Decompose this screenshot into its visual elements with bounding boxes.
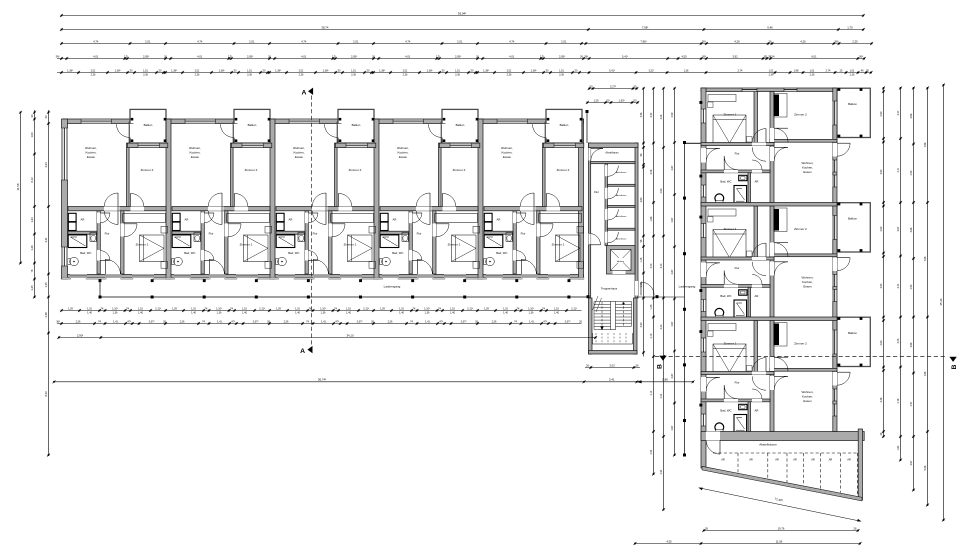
svg-text:1,51: 1,51 <box>247 69 252 72</box>
svg-text:1,38²: 1,38² <box>531 69 537 72</box>
svg-text:6,01: 6,01 <box>811 54 817 58</box>
svg-text:AR: AR <box>847 458 851 462</box>
svg-text:1,10²: 1,10² <box>112 307 118 310</box>
svg-text:B: B <box>656 364 663 369</box>
svg-text:1,01: 1,01 <box>850 69 855 72</box>
svg-text:4,74: 4,74 <box>405 39 411 43</box>
svg-text:35,36: 35,36 <box>939 298 943 305</box>
svg-text:AR: AR <box>811 458 815 462</box>
svg-text:2,65²: 2,65² <box>455 54 461 58</box>
svg-text:3,43: 3,43 <box>660 263 663 268</box>
svg-text:26: 26 <box>705 526 708 530</box>
svg-text:AR: AR <box>775 458 779 462</box>
svg-text:2,99: 2,99 <box>671 112 674 117</box>
svg-text:4,01: 4,01 <box>405 54 411 58</box>
svg-text:26: 26 <box>769 39 772 43</box>
svg-text:7,88: 7,88 <box>924 371 927 376</box>
svg-text:2,90²: 2,90² <box>77 333 83 337</box>
svg-text:4,03: 4,03 <box>910 170 913 175</box>
svg-text:17³: 17³ <box>332 54 336 58</box>
svg-text:AR: AR <box>497 218 501 222</box>
svg-text:1,05: 1,05 <box>650 304 653 309</box>
svg-text:Abstellraum: Abstellraum <box>605 151 618 154</box>
svg-text:3,06: 3,06 <box>640 112 643 117</box>
svg-text:2,87: 2,87 <box>671 425 674 430</box>
svg-text:B: B <box>951 364 958 369</box>
svg-text:1,40: 1,40 <box>346 312 351 315</box>
svg-text:1,36: 1,36 <box>529 312 534 315</box>
svg-text:Abstellräume: Abstellräume <box>759 442 777 446</box>
svg-text:AR: AR <box>829 458 833 462</box>
svg-text:Zimmer 1: Zimmer 1 <box>724 227 737 231</box>
svg-text:Zimmer 1: Zimmer 1 <box>724 342 737 346</box>
svg-text:2,03: 2,03 <box>609 363 615 367</box>
svg-text:1,01: 1,01 <box>399 307 404 310</box>
svg-text:3,28: 3,28 <box>650 169 653 174</box>
svg-text:Kochen,: Kochen, <box>397 150 408 154</box>
svg-text:3,07²: 3,07² <box>149 320 155 323</box>
svg-text:Flur: Flur <box>521 232 526 236</box>
svg-text:1,63: 1,63 <box>30 132 34 138</box>
svg-text:2,51: 2,51 <box>145 39 151 43</box>
svg-text:3,86: 3,86 <box>910 342 913 347</box>
svg-text:1,86: 1,86 <box>650 216 653 221</box>
svg-text:Wohnen,: Wohnen, <box>85 146 97 150</box>
svg-text:1,41: 1,41 <box>425 320 430 323</box>
svg-text:AR: AR <box>749 458 753 462</box>
svg-text:1,40: 1,40 <box>554 312 559 315</box>
svg-text:Flur: Flur <box>209 232 214 236</box>
svg-text:6,13: 6,13 <box>30 177 34 183</box>
svg-text:2,36: 2,36 <box>195 74 200 77</box>
svg-text:2,65²: 2,65² <box>351 54 357 58</box>
svg-text:4,26: 4,26 <box>800 39 806 43</box>
svg-text:3,26: 3,26 <box>660 114 663 119</box>
svg-text:2,51: 2,51 <box>457 39 463 43</box>
svg-text:Laubengang: Laubengang <box>384 284 401 288</box>
svg-text:1,51: 1,51 <box>450 307 455 310</box>
svg-text:47²: 47² <box>335 320 339 323</box>
svg-text:1,01: 1,01 <box>87 307 92 310</box>
svg-text:1,26: 1,26 <box>593 98 599 102</box>
svg-text:2,01: 2,01 <box>195 69 200 72</box>
svg-text:1,36: 1,36 <box>113 312 118 315</box>
svg-text:1,51: 1,51 <box>455 69 460 72</box>
svg-text:17³: 17³ <box>228 54 232 58</box>
svg-text:Flur: Flur <box>313 232 318 236</box>
svg-text:36²: 36² <box>859 54 863 58</box>
svg-text:2,11²: 2,11² <box>571 307 577 310</box>
svg-text:Abstellraum: Abstellraum <box>616 194 627 197</box>
svg-text:3,23: 3,23 <box>660 324 663 329</box>
svg-text:3,53: 3,53 <box>880 169 883 174</box>
svg-text:Zimmer 1: Zimmer 1 <box>552 242 565 246</box>
svg-text:4,44: 4,44 <box>44 162 48 168</box>
svg-text:3,00: 3,00 <box>640 322 643 327</box>
svg-text:Essen: Essen <box>399 155 408 159</box>
svg-text:2,51: 2,51 <box>249 39 255 43</box>
svg-text:2,60: 2,60 <box>880 340 883 345</box>
svg-text:1,26: 1,26 <box>68 307 73 310</box>
svg-text:1,26: 1,26 <box>172 307 177 310</box>
svg-text:2,36: 2,36 <box>850 74 855 77</box>
svg-text:Bad, WC: Bad, WC <box>392 251 403 255</box>
svg-text:1,40: 1,40 <box>242 312 247 315</box>
svg-text:1,62: 1,62 <box>897 445 900 450</box>
svg-text:26: 26 <box>854 526 857 530</box>
svg-text:1,38²: 1,38² <box>67 69 73 72</box>
svg-text:7,96²: 7,96² <box>640 39 646 43</box>
svg-text:2,36: 2,36 <box>455 74 460 77</box>
svg-text:1,51: 1,51 <box>242 307 247 310</box>
svg-text:Zimmer 2: Zimmer 2 <box>245 168 258 172</box>
svg-text:2,48: 2,48 <box>44 312 48 318</box>
svg-text:1,40: 1,40 <box>138 312 143 315</box>
svg-text:Aufzug: Aufzug <box>617 260 625 263</box>
svg-text:3,41: 3,41 <box>609 378 615 382</box>
svg-text:17³: 17³ <box>540 54 544 58</box>
svg-text:1,10²: 1,10² <box>424 307 430 310</box>
svg-text:1,38²: 1,38² <box>323 69 329 72</box>
svg-text:1,01: 1,01 <box>810 69 815 72</box>
svg-text:1,40: 1,40 <box>450 312 455 315</box>
svg-text:1,01: 1,01 <box>295 307 300 310</box>
svg-text:4,01: 4,01 <box>509 54 515 58</box>
svg-text:Zimmer 2: Zimmer 2 <box>557 168 570 172</box>
svg-text:1,36: 1,36 <box>321 312 326 315</box>
svg-text:Essen: Essen <box>803 399 812 403</box>
svg-text:1,36: 1,36 <box>425 312 430 315</box>
svg-text:2,36: 2,36 <box>299 74 304 77</box>
svg-text:AR: AR <box>185 218 189 222</box>
svg-text:1,38²: 1,38² <box>115 69 121 72</box>
svg-text:1,43: 1,43 <box>30 217 34 223</box>
svg-text:3,67: 3,67 <box>910 460 913 465</box>
svg-text:4,03: 4,03 <box>910 284 913 289</box>
svg-text:1,38²: 1,38² <box>427 69 433 72</box>
svg-text:2,60: 2,60 <box>880 226 883 231</box>
svg-text:Flur: Flur <box>735 152 740 156</box>
svg-text:5,06: 5,06 <box>924 465 927 470</box>
svg-text:2,26: 2,26 <box>492 320 497 323</box>
svg-text:2,26: 2,26 <box>76 320 81 323</box>
svg-text:2,51: 2,51 <box>353 39 359 43</box>
svg-text:36²: 36² <box>834 39 838 43</box>
svg-text:7,88: 7,88 <box>924 142 927 147</box>
svg-text:AR: AR <box>755 409 759 413</box>
svg-text:1,10²: 1,10² <box>320 307 326 310</box>
svg-text:4,74: 4,74 <box>509 39 515 43</box>
svg-text:3,07²: 3,07² <box>565 320 571 323</box>
svg-text:Essen: Essen <box>295 155 304 159</box>
svg-text:2,34: 2,34 <box>650 449 653 454</box>
svg-text:Essen: Essen <box>803 285 812 289</box>
svg-text:1,36: 1,36 <box>684 69 689 72</box>
svg-text:Wohnen,: Wohnen, <box>293 146 305 150</box>
svg-text:Wohnen,: Wohnen, <box>802 161 814 165</box>
svg-text:AR: AR <box>721 458 725 462</box>
svg-text:1,40: 1,40 <box>399 312 404 315</box>
svg-text:Essen: Essen <box>503 155 512 159</box>
svg-text:9,46: 9,46 <box>767 25 773 29</box>
svg-text:Bad, WC: Bad, WC <box>720 294 731 298</box>
svg-text:Kochen,: Kochen, <box>293 150 304 154</box>
svg-text:2,87: 2,87 <box>671 269 674 274</box>
svg-text:Kochen,: Kochen, <box>85 150 96 154</box>
svg-text:3,80: 3,80 <box>640 197 643 202</box>
svg-text:2,11²: 2,11² <box>467 307 473 310</box>
svg-text:4,37: 4,37 <box>910 401 913 406</box>
svg-text:1,51: 1,51 <box>554 307 559 310</box>
svg-text:Balkon: Balkon <box>248 123 257 127</box>
svg-text:5,41²: 5,41² <box>609 69 615 72</box>
svg-text:Zimmer 1: Zimmer 1 <box>724 113 737 117</box>
svg-text:1,41: 1,41 <box>321 320 326 323</box>
svg-text:2,36: 2,36 <box>403 74 408 77</box>
svg-text:2,65²: 2,65² <box>559 54 565 58</box>
svg-text:4,01: 4,01 <box>197 54 203 58</box>
svg-text:4,78: 4,78 <box>897 398 900 403</box>
svg-text:AR: AR <box>81 218 85 222</box>
svg-text:4,74: 4,74 <box>93 39 99 43</box>
svg-text:AR: AR <box>289 218 293 222</box>
svg-text:1,38²: 1,38² <box>483 69 489 72</box>
svg-text:Balkon: Balkon <box>848 331 857 335</box>
svg-text:2,26: 2,26 <box>284 320 289 323</box>
svg-text:1,38²: 1,38² <box>171 69 177 72</box>
svg-text:1,26: 1,26 <box>30 245 34 251</box>
svg-text:Zimmer 1: Zimmer 1 <box>240 242 253 246</box>
svg-text:3,07²: 3,07² <box>253 320 259 323</box>
svg-text:17³: 17³ <box>124 54 128 58</box>
svg-text:1,98: 1,98 <box>794 69 799 72</box>
svg-text:Kochen,: Kochen, <box>802 280 813 284</box>
svg-text:19,76: 19,76 <box>778 526 785 530</box>
svg-text:2,36: 2,36 <box>247 74 252 77</box>
svg-text:36²: 36² <box>702 54 706 58</box>
svg-text:5,41²: 5,41² <box>622 54 628 58</box>
svg-text:3,86: 3,86 <box>910 113 913 118</box>
svg-text:38,74: 38,74 <box>321 25 328 29</box>
svg-text:36²: 36² <box>56 320 60 323</box>
svg-text:Balkon: Balkon <box>352 123 361 127</box>
svg-text:2,65²: 2,65² <box>143 54 149 58</box>
svg-text:3,53: 3,53 <box>880 283 883 288</box>
svg-text:2,87: 2,87 <box>671 165 674 170</box>
svg-text:Essen: Essen <box>803 170 812 174</box>
svg-text:Zimmer 2: Zimmer 2 <box>349 168 362 172</box>
svg-text:3,45: 3,45 <box>897 338 900 343</box>
svg-text:Balkon: Balkon <box>848 217 857 221</box>
svg-text:Abstellraum: Abstellraum <box>616 238 627 241</box>
svg-text:1,26: 1,26 <box>276 307 281 310</box>
svg-text:4,90: 4,90 <box>660 188 663 193</box>
svg-text:4,55: 4,55 <box>681 54 687 58</box>
svg-text:4,01: 4,01 <box>93 54 99 58</box>
svg-text:3,86: 3,86 <box>662 378 668 382</box>
svg-text:1,01: 1,01 <box>191 307 196 310</box>
svg-text:4,26: 4,26 <box>734 39 740 43</box>
svg-text:Flur: Flur <box>735 381 740 385</box>
svg-text:AR: AR <box>755 180 759 184</box>
svg-text:1,41: 1,41 <box>529 320 534 323</box>
svg-text:3,86: 3,86 <box>910 227 913 232</box>
svg-text:36²: 36² <box>56 54 60 58</box>
svg-text:Balkon: Balkon <box>144 123 153 127</box>
svg-text:4,04: 4,04 <box>660 469 663 474</box>
svg-text:Laubengang: Laubengang <box>679 284 696 288</box>
svg-text:2,87: 2,87 <box>671 321 674 326</box>
svg-text:Balkon: Balkon <box>848 102 857 106</box>
svg-text:4,41: 4,41 <box>44 237 48 243</box>
svg-text:3,92: 3,92 <box>732 54 738 58</box>
svg-text:1,10: 1,10 <box>640 282 643 287</box>
svg-text:2,87: 2,87 <box>671 217 674 222</box>
svg-text:7,88: 7,88 <box>924 256 927 261</box>
svg-text:1,51: 1,51 <box>143 69 148 72</box>
svg-text:47²: 47² <box>439 320 443 323</box>
svg-text:1,26: 1,26 <box>380 307 385 310</box>
svg-text:Wohnen,: Wohnen, <box>802 276 814 280</box>
svg-text:3,38: 3,38 <box>880 397 883 402</box>
svg-text:1,25: 1,25 <box>44 282 48 288</box>
svg-text:2,36: 2,36 <box>143 74 148 77</box>
svg-text:2,36: 2,36 <box>559 74 564 77</box>
svg-text:Bad, WC: Bad, WC <box>184 251 195 255</box>
svg-text:2,19: 2,19 <box>650 333 653 338</box>
svg-text:3,27²: 3,27² <box>610 84 616 88</box>
svg-text:Zimmer 1: Zimmer 1 <box>136 242 149 246</box>
svg-text:AR: AR <box>755 294 759 298</box>
svg-text:Bad, WC: Bad, WC <box>80 251 91 255</box>
svg-text:1,36: 1,36 <box>217 312 222 315</box>
svg-text:1,01: 1,01 <box>503 307 508 310</box>
svg-text:Flur: Flur <box>417 232 422 236</box>
svg-text:Zimmer 2: Zimmer 2 <box>794 227 807 231</box>
svg-text:3,07²: 3,07² <box>357 320 363 323</box>
svg-text:36²: 36² <box>584 54 588 58</box>
svg-text:3,20: 3,20 <box>649 69 654 72</box>
svg-text:A: A <box>302 90 307 97</box>
svg-text:34,10: 34,10 <box>347 333 354 337</box>
svg-text:2,51: 2,51 <box>561 39 567 43</box>
svg-text:2,11²: 2,11² <box>363 307 369 310</box>
svg-text:11,58: 11,58 <box>16 183 20 190</box>
svg-text:1,01: 1,01 <box>769 69 774 72</box>
svg-text:8,43: 8,43 <box>44 391 48 397</box>
svg-text:4,74: 4,74 <box>197 39 203 43</box>
svg-text:3,44: 3,44 <box>897 283 900 288</box>
svg-text:2,36: 2,36 <box>507 74 512 77</box>
svg-text:2,36: 2,36 <box>810 74 815 77</box>
svg-text:3,47: 3,47 <box>897 110 900 115</box>
svg-text:2,36: 2,36 <box>351 74 356 77</box>
svg-text:2,25: 2,25 <box>852 39 858 43</box>
svg-text:1,75: 1,75 <box>847 25 853 29</box>
svg-text:Wohnen,: Wohnen, <box>802 390 814 394</box>
svg-text:1,38²: 1,38² <box>219 69 225 72</box>
svg-text:Bad, WC: Bad, WC <box>288 251 299 255</box>
svg-text:1,40: 1,40 <box>503 312 508 315</box>
svg-text:2,74: 2,74 <box>826 69 831 72</box>
svg-text:Zimmer 1: Zimmer 1 <box>448 242 461 246</box>
svg-text:1,51: 1,51 <box>138 307 143 310</box>
svg-text:3,02: 3,02 <box>650 112 653 117</box>
svg-text:1,51: 1,51 <box>346 307 351 310</box>
svg-text:Abstellraum: Abstellraum <box>616 215 627 218</box>
svg-text:2,26: 2,26 <box>388 320 393 323</box>
svg-text:4,42: 4,42 <box>660 393 663 398</box>
svg-text:AR: AR <box>393 218 397 222</box>
svg-text:Kochen,: Kochen, <box>501 150 512 154</box>
svg-text:Balkon: Balkon <box>560 123 569 127</box>
svg-text:1,10²: 1,10² <box>216 307 222 310</box>
svg-text:1,10²: 1,10² <box>528 307 534 310</box>
svg-text:17³: 17³ <box>436 54 440 58</box>
svg-text:2,01: 2,01 <box>507 69 512 72</box>
svg-text:1,51: 1,51 <box>351 69 356 72</box>
svg-text:1,63²: 1,63² <box>619 98 625 102</box>
svg-text:Flur: Flur <box>594 190 599 194</box>
svg-text:4,01: 4,01 <box>301 54 307 58</box>
svg-text:Zimmer 2: Zimmer 2 <box>141 168 154 172</box>
svg-text:1,51: 1,51 <box>559 69 564 72</box>
svg-text:4,74: 4,74 <box>301 39 307 43</box>
svg-text:47²: 47² <box>127 320 131 323</box>
svg-text:Wohnen,: Wohnen, <box>189 146 201 150</box>
svg-text:3,43: 3,43 <box>650 263 653 268</box>
svg-text:2,26: 2,26 <box>180 320 185 323</box>
svg-text:1,40: 1,40 <box>191 312 196 315</box>
svg-text:36,74²: 36,74² <box>318 378 326 382</box>
svg-text:36²: 36² <box>702 39 706 43</box>
svg-text:Bad, WC: Bad, WC <box>496 251 507 255</box>
svg-text:Kochen,: Kochen, <box>189 150 200 154</box>
svg-text:4,14: 4,14 <box>650 390 653 395</box>
svg-text:Essen: Essen <box>87 155 96 159</box>
svg-text:2,01: 2,01 <box>403 69 408 72</box>
svg-text:47²: 47² <box>231 320 235 323</box>
svg-text:1,38²: 1,38² <box>275 69 281 72</box>
svg-text:1,40: 1,40 <box>295 312 300 315</box>
svg-text:2,01: 2,01 <box>299 69 304 72</box>
svg-text:4,41: 4,41 <box>897 167 900 172</box>
svg-text:1,38²: 1,38² <box>379 69 385 72</box>
svg-text:Zimmer 2: Zimmer 2 <box>453 168 466 172</box>
svg-text:93,94²: 93,94² <box>458 11 466 15</box>
svg-text:2,74: 2,74 <box>738 69 743 72</box>
svg-text:Wohnen,: Wohnen, <box>501 146 513 150</box>
svg-text:2,36: 2,36 <box>91 74 96 77</box>
svg-text:Balkon: Balkon <box>456 123 465 127</box>
svg-text:4,55: 4,55 <box>666 539 672 543</box>
svg-text:Essen: Essen <box>191 155 200 159</box>
svg-text:Zimmer 1: Zimmer 1 <box>344 242 357 246</box>
svg-text:2,01: 2,01 <box>91 69 96 72</box>
svg-text:Flur: Flur <box>735 266 740 270</box>
svg-text:3,67: 3,67 <box>897 226 900 231</box>
svg-text:1,25: 1,25 <box>30 285 34 291</box>
svg-text:1,41: 1,41 <box>217 320 222 323</box>
svg-text:1,41: 1,41 <box>113 320 118 323</box>
svg-text:2,36: 2,36 <box>769 74 774 77</box>
svg-text:1,40: 1,40 <box>87 312 92 315</box>
svg-text:11,06: 11,06 <box>776 539 783 543</box>
svg-text:47²: 47² <box>543 320 547 323</box>
svg-text:Bad, WC: Bad, WC <box>720 409 731 413</box>
svg-text:3,07²: 3,07² <box>461 320 467 323</box>
svg-text:2,60: 2,60 <box>880 111 883 116</box>
